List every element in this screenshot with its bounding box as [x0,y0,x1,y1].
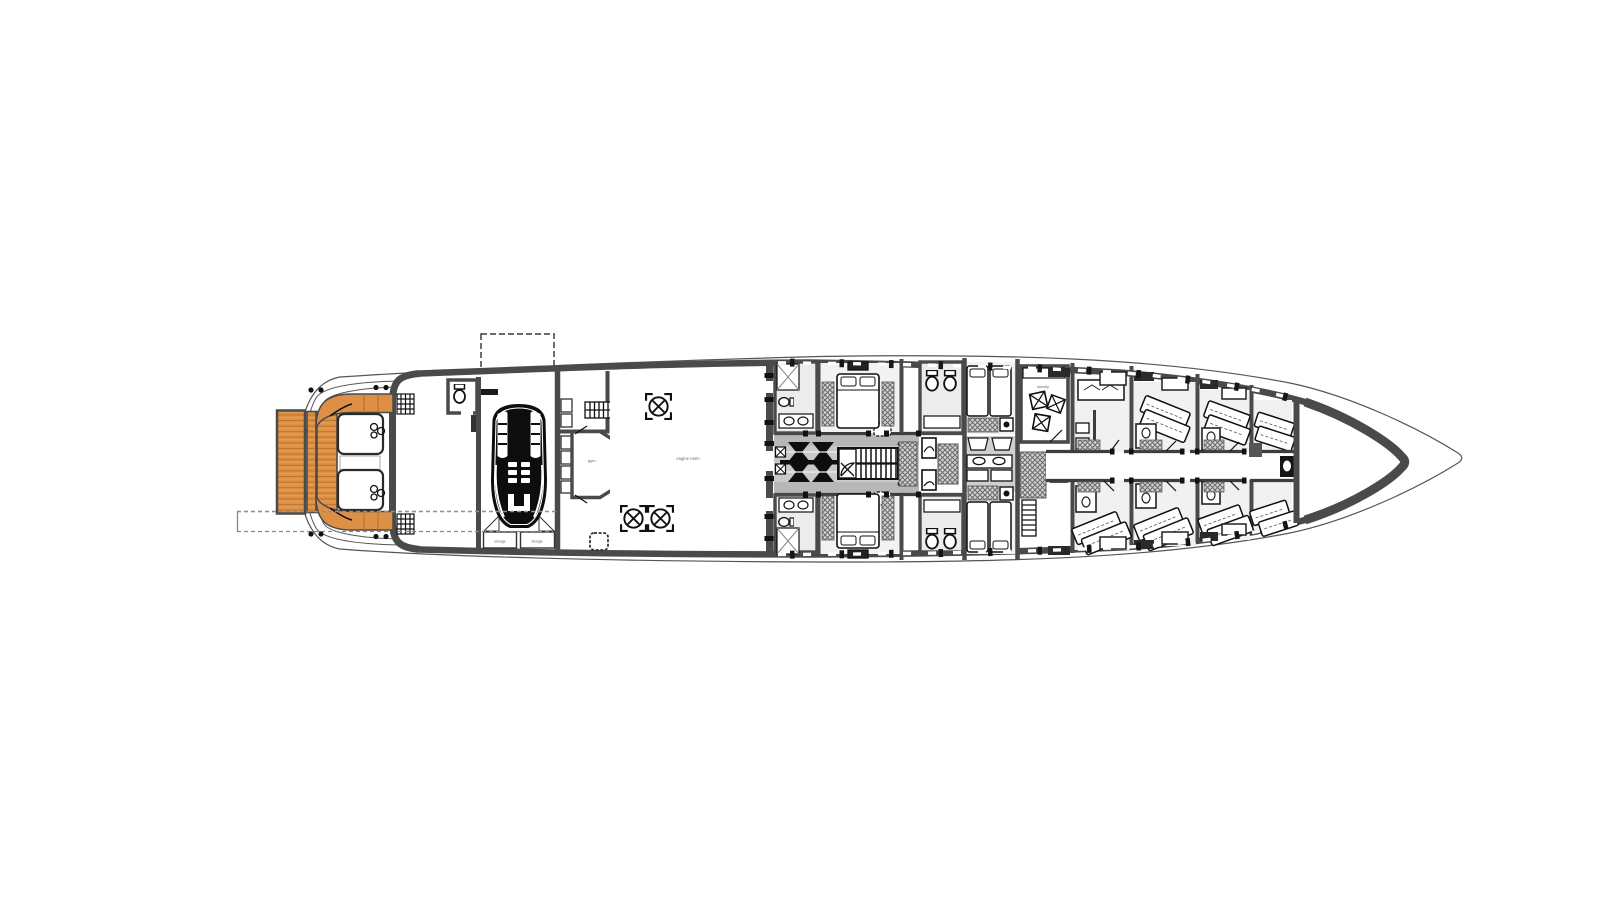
svg-text:laundry: laundry [1037,385,1049,389]
svg-text:gym: gym [588,458,596,463]
svg-text:engine room: engine room [676,456,700,461]
svg-text:storage: storage [531,540,542,544]
svg-text:storage: storage [494,540,505,544]
